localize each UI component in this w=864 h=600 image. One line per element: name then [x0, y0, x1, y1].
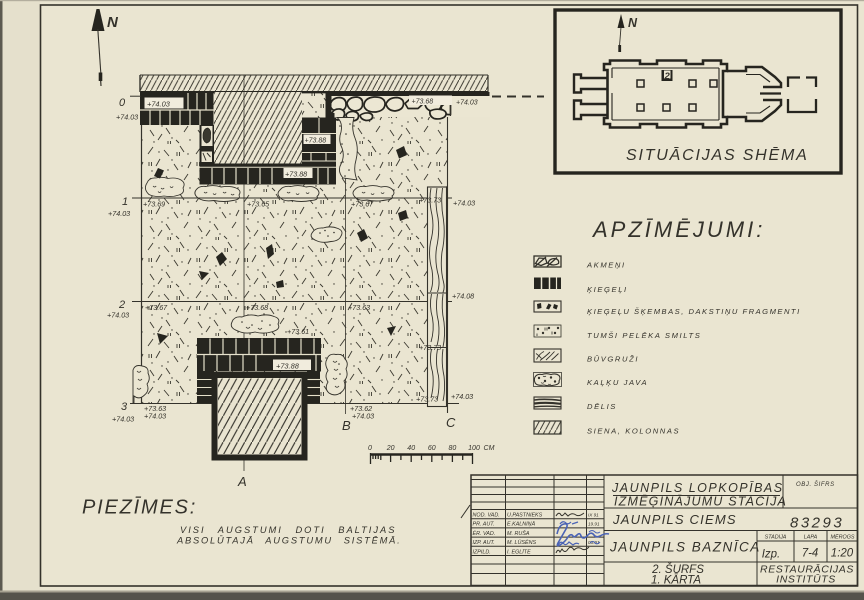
svg-text:+74.03: +74.03 [147, 100, 171, 109]
svg-text:TUMŠI PELĒKA SMILTS: TUMŠI PELĒKA SMILTS [587, 331, 701, 340]
svg-text:60: 60 [428, 445, 436, 452]
svg-text:0: 0 [368, 445, 372, 452]
svg-text:+73.73: +73.73 [419, 196, 441, 205]
svg-text:1:20: 1:20 [831, 548, 854, 560]
svg-text:E.KALNIŅĀ: E.KALNIŅĀ [507, 521, 536, 528]
svg-text:JAUNPILS LOPKOPĪBAS: JAUNPILS LOPKOPĪBAS [611, 481, 784, 495]
svg-text:+74.03: +74.03 [116, 113, 138, 122]
svg-text:PR. AUT.: PR. AUT. [473, 522, 495, 528]
svg-text:+73.73: +73.73 [416, 395, 438, 404]
svg-text:20: 20 [386, 445, 395, 452]
svg-text:2: 2 [118, 299, 125, 311]
svg-text:STADIJA: STADIJA [765, 535, 787, 541]
svg-text:+73.68: +73.68 [246, 303, 268, 312]
svg-text:+74.03: +74.03 [456, 100, 478, 107]
svg-text:+74.03: +74.03 [451, 392, 473, 401]
svg-text:+74.08: +74.08 [452, 292, 474, 301]
svg-text:VISI AUGSTUMI DOTI BALTIJAS: VISI AUGSTUMI DOTI BALTIJAS [180, 525, 396, 535]
svg-text:+73.69: +73.69 [143, 200, 165, 209]
svg-text:MĒROGS: MĒROGS [831, 534, 855, 541]
svg-text:+74.03: +74.03 [144, 412, 166, 421]
svg-text:U.PASTNIEKS: U.PASTNIEKS [507, 513, 543, 519]
svg-text:NOD. VAD.: NOD. VAD. [473, 513, 500, 519]
svg-text:+74.03: +74.03 [107, 311, 129, 320]
svg-text:M. LŪSĒNS: M. LŪSĒNS [507, 539, 536, 546]
svg-text:ĒR. VAD.: ĒR. VAD. [473, 530, 496, 537]
svg-text:83293: 83293 [790, 515, 844, 532]
svg-text:OBJ. ŠIFRS: OBJ. ŠIFRS [796, 481, 835, 488]
svg-text:M. RUŠA: M. RUŠA [507, 530, 530, 537]
svg-text:+74.03: +74.03 [352, 412, 374, 421]
svg-text:+74.03: +74.03 [453, 199, 475, 208]
svg-text:B: B [342, 418, 351, 433]
svg-text:IX 91: IX 91 [588, 513, 599, 518]
svg-text:N: N [107, 14, 119, 31]
svg-text:ĶIEĢEĻI: ĶIEĢEĻI [587, 285, 628, 294]
svg-text:I. EGLĪTE: I. EGLĪTE [507, 548, 531, 555]
svg-text:C: C [446, 415, 456, 430]
svg-text:AKMEŅI: AKMEŅI [586, 261, 626, 270]
svg-text:JAUNPILS CIEMS: JAUNPILS CIEMS [612, 512, 737, 527]
svg-text:KAĻĶU JAVA: KAĻĶU JAVA [587, 378, 648, 387]
svg-text:+73.88: +73.88 [285, 170, 307, 179]
svg-text:IZP. AUT.: IZP. AUT. [473, 540, 495, 546]
svg-text:BŪVGRUŽI: BŪVGRUŽI [587, 355, 639, 364]
svg-text:+74.03: +74.03 [112, 415, 134, 424]
svg-text:A: A [237, 474, 247, 489]
svg-text:3: 3 [121, 401, 128, 413]
svg-text:2: 2 [664, 71, 671, 82]
svg-text:19.91: 19.91 [588, 522, 600, 527]
svg-text:+73.67: +73.67 [145, 303, 168, 312]
svg-text:ĶIEĢEĻU ŠĶEMBAS, DAKSTIŅU FRAG: ĶIEĢEĻU ŠĶEMBAS, DAKSTIŅU FRAGMENTI [587, 307, 801, 316]
svg-text:INSTITŪTS: INSTITŪTS [776, 574, 836, 586]
svg-text:SIENA, KOLONNAS: SIENA, KOLONNAS [587, 427, 680, 436]
svg-text:100: 100 [468, 445, 480, 452]
svg-text:N: N [628, 16, 638, 30]
svg-text:0: 0 [119, 97, 126, 109]
svg-text:1: 1 [122, 196, 128, 208]
svg-text:IZPILD.: IZPILD. [473, 549, 491, 555]
svg-text:80: 80 [449, 445, 457, 452]
svg-text:DĒLIS: DĒLIS [587, 402, 617, 411]
svg-text:Izp.: Izp. [762, 549, 781, 561]
svg-text:CM: CM [484, 445, 495, 452]
svg-text:+73.65: +73.65 [247, 200, 270, 209]
svg-text:+73.88: +73.88 [305, 138, 327, 145]
svg-text:+74.03: +74.03 [108, 209, 130, 218]
svg-text:40: 40 [407, 445, 415, 452]
svg-text:PIEZĪMES:: PIEZĪMES: [82, 496, 197, 519]
svg-text:APZĪMĒJUMI:: APZĪMĒJUMI: [591, 217, 765, 242]
svg-text:ABSOLŪTAJĀ AUGSTUMU SISTĒMĀ.: ABSOLŪTAJĀ AUGSTUMU SISTĒMĀ. [176, 536, 402, 546]
svg-text:7-4: 7-4 [802, 548, 819, 560]
svg-text:JAUNPILS BAZNĪCA: JAUNPILS BAZNĪCA [609, 540, 761, 555]
svg-text:+73.73: +73.73 [419, 343, 441, 352]
svg-text:+73.61: +73.61 [287, 327, 309, 336]
svg-text:1. KĀRTA: 1. KĀRTA [651, 575, 701, 587]
svg-text:+73.88: +73.88 [276, 362, 300, 371]
svg-text:IZMĒĢINĀJUMU STACIJA: IZMĒĢINĀJUMU STACIJA [614, 495, 787, 509]
svg-text:+73.67: +73.67 [351, 200, 374, 209]
svg-text:+73.68: +73.68 [412, 99, 434, 106]
svg-text:SITUĀCIJAS SHĒMA: SITUĀCIJAS SHĒMA [626, 146, 809, 164]
svg-text:LAPA: LAPA [804, 535, 818, 541]
svg-text:+73.63: +73.63 [348, 303, 370, 312]
